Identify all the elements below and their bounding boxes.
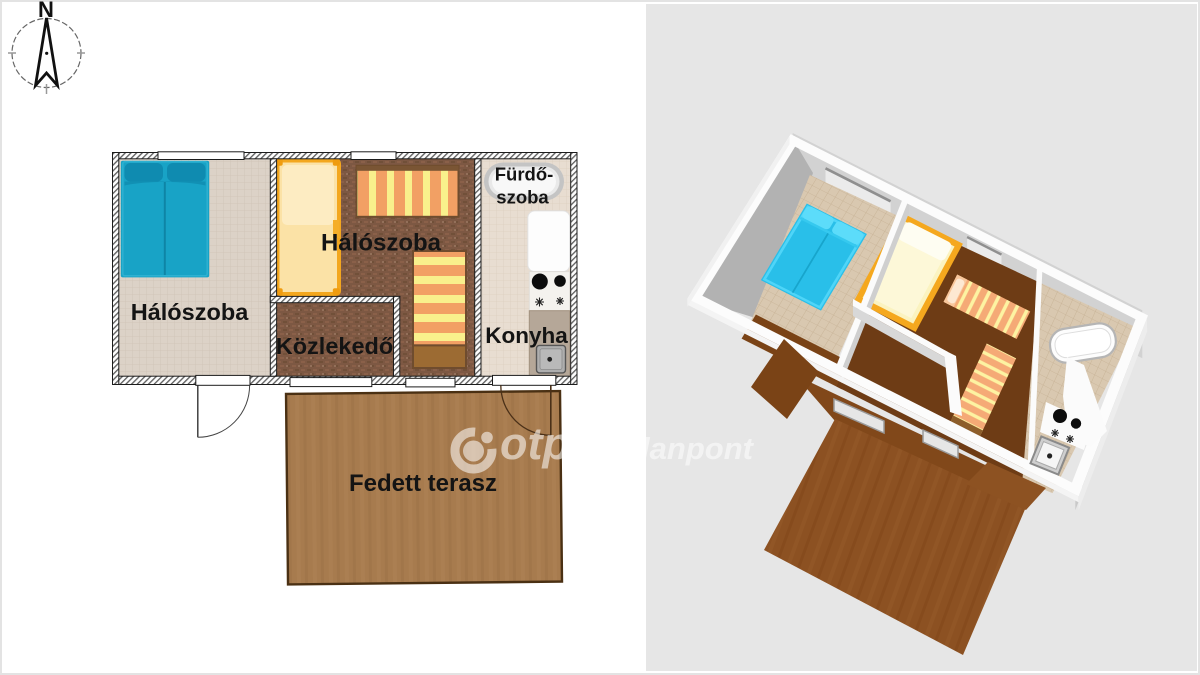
svg-text:otp: otp [500,418,570,469]
svg-text:Fürdő-: Fürdő- [495,164,554,185]
svg-text:szoba: szoba [496,187,549,208]
svg-text:Hálószoba: Hálószoba [131,299,249,325]
svg-text:Közlekedő: Közlekedő [276,333,394,359]
svg-text:ingatlanpont: ingatlanpont [567,431,755,466]
svg-text:Hálószoba: Hálószoba [321,230,442,257]
svg-text:Konyha: Konyha [485,323,568,348]
svg-text:Fedett terasz: Fedett terasz [349,470,497,497]
